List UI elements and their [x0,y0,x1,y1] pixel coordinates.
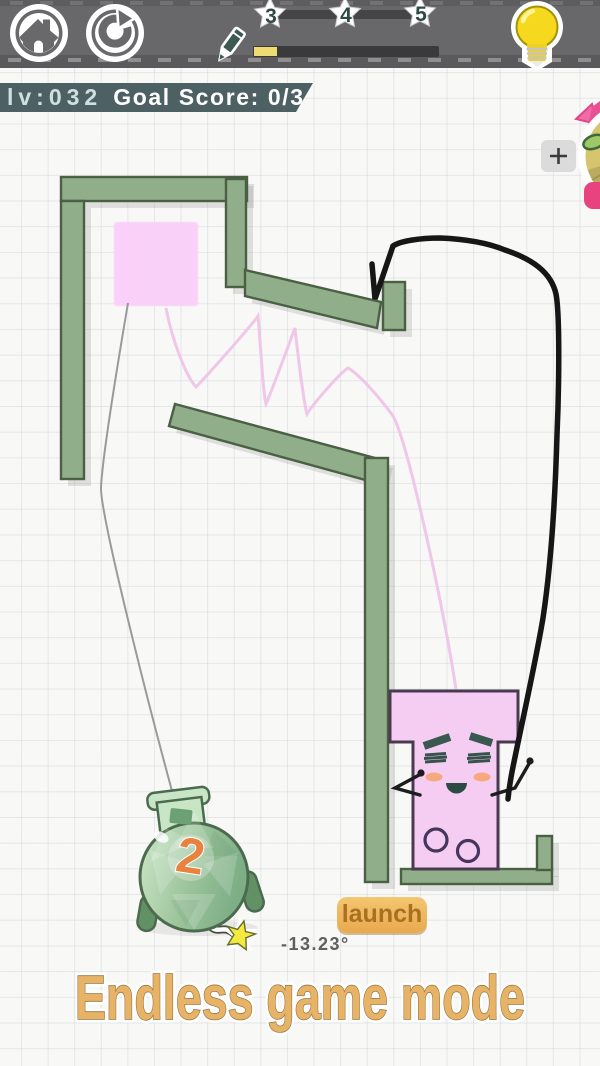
svg-text:3: 3 [265,5,277,28]
svg-text:4: 4 [340,4,352,27]
svg-text:5: 5 [415,3,427,26]
svg-text:Endless game mode: Endless game mode [75,964,525,1033]
